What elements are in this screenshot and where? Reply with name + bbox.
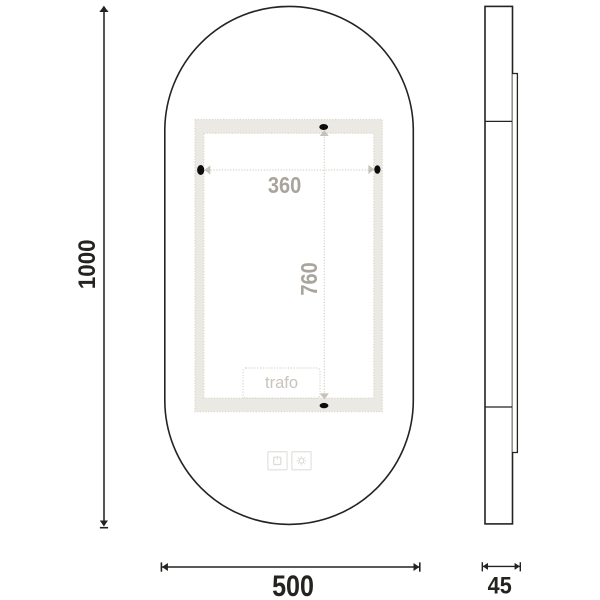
svg-text:500: 500 bbox=[272, 569, 314, 600]
svg-text:45: 45 bbox=[488, 571, 512, 598]
svg-text:360: 360 bbox=[268, 172, 301, 199]
svg-text:1000: 1000 bbox=[73, 239, 100, 289]
svg-text:760: 760 bbox=[296, 262, 323, 295]
svg-text:trafo: trafo bbox=[265, 374, 298, 392]
